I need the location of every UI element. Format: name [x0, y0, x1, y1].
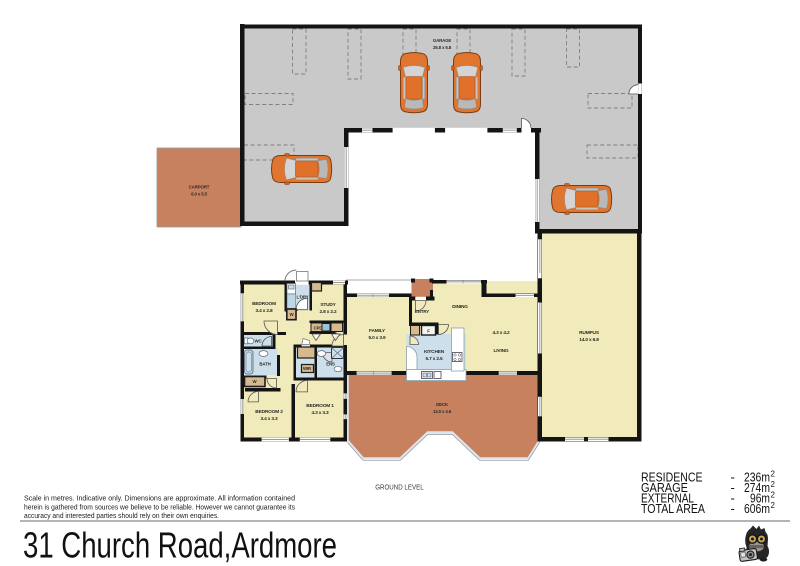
svg-text:BATH: BATH: [259, 362, 270, 367]
svg-text:2.8 x 2.2: 2.8 x 2.2: [319, 309, 337, 315]
svg-text:3.4 x 2.8: 3.4 x 2.8: [255, 308, 273, 314]
svg-text:BEDROOM 2: BEDROOM 2: [255, 409, 283, 415]
svg-text:GARAGE: GARAGE: [433, 38, 452, 43]
svg-text:DINING: DINING: [452, 304, 468, 310]
svg-text:WIR: WIR: [303, 366, 312, 371]
svg-text:6.0 x 5.5: 6.0 x 5.5: [191, 192, 207, 197]
svg-text:BEDROOM: BEDROOM: [252, 301, 276, 307]
svg-text:4.3 x 4.2: 4.3 x 4.2: [492, 330, 510, 336]
svg-text:F: F: [427, 329, 430, 334]
svg-text:2: 2: [771, 491, 776, 500]
svg-text:FAMILY: FAMILY: [369, 328, 386, 334]
svg-text:ENTRY: ENTRY: [415, 309, 429, 314]
svg-text:2: 2: [771, 501, 776, 510]
svg-text:ENS: ENS: [326, 362, 335, 367]
svg-text:accuracy and interested partie: accuracy and interested parties should r…: [24, 513, 219, 520]
svg-text:3.4 x 3.3: 3.4 x 3.3: [260, 416, 278, 422]
svg-text:RUMPUS: RUMPUS: [579, 330, 600, 336]
svg-text:BEDROOM 1: BEDROOM 1: [306, 403, 334, 409]
svg-text:31 Church Road,Ardmore: 31 Church Road,Ardmore: [23, 524, 337, 565]
svg-text:14.0 x 6.8: 14.0 x 6.8: [579, 337, 599, 343]
svg-text:L'DRY: L'DRY: [296, 295, 308, 300]
svg-text:KITCHEN: KITCHEN: [424, 349, 445, 355]
svg-text:CPD: CPD: [314, 326, 323, 331]
svg-text:CARPORT: CARPORT: [189, 185, 210, 190]
svg-text:-: -: [731, 501, 735, 516]
svg-text:5.0 x 3.9: 5.0 x 3.9: [368, 335, 386, 341]
svg-text:606m: 606m: [744, 501, 770, 516]
svg-text:2: 2: [771, 480, 776, 489]
svg-text:5.7 x 2.5: 5.7 x 2.5: [425, 356, 443, 362]
svg-text:LIVING: LIVING: [494, 348, 509, 354]
svg-text:4.3 x 3.3: 4.3 x 3.3: [311, 410, 329, 416]
svg-text:13.0 x 4.6: 13.0 x 4.6: [433, 409, 452, 414]
svg-text:WC: WC: [254, 339, 262, 344]
svg-text:25.8 x 6.8: 25.8 x 6.8: [433, 45, 452, 50]
svg-text:DECK: DECK: [436, 402, 449, 407]
svg-text:GROUND LEVEL: GROUND LEVEL: [375, 483, 424, 492]
svg-text:TOTAL AREA: TOTAL AREA: [641, 501, 705, 516]
svg-text:STUDY: STUDY: [320, 302, 336, 308]
svg-text:herein is gathered from source: herein is gathered from sources we belie…: [24, 504, 295, 511]
svg-text:2: 2: [771, 470, 776, 479]
svg-text:Scale in metres. Indicative: Scale in metres. Indicative only. Dimens…: [24, 496, 295, 503]
